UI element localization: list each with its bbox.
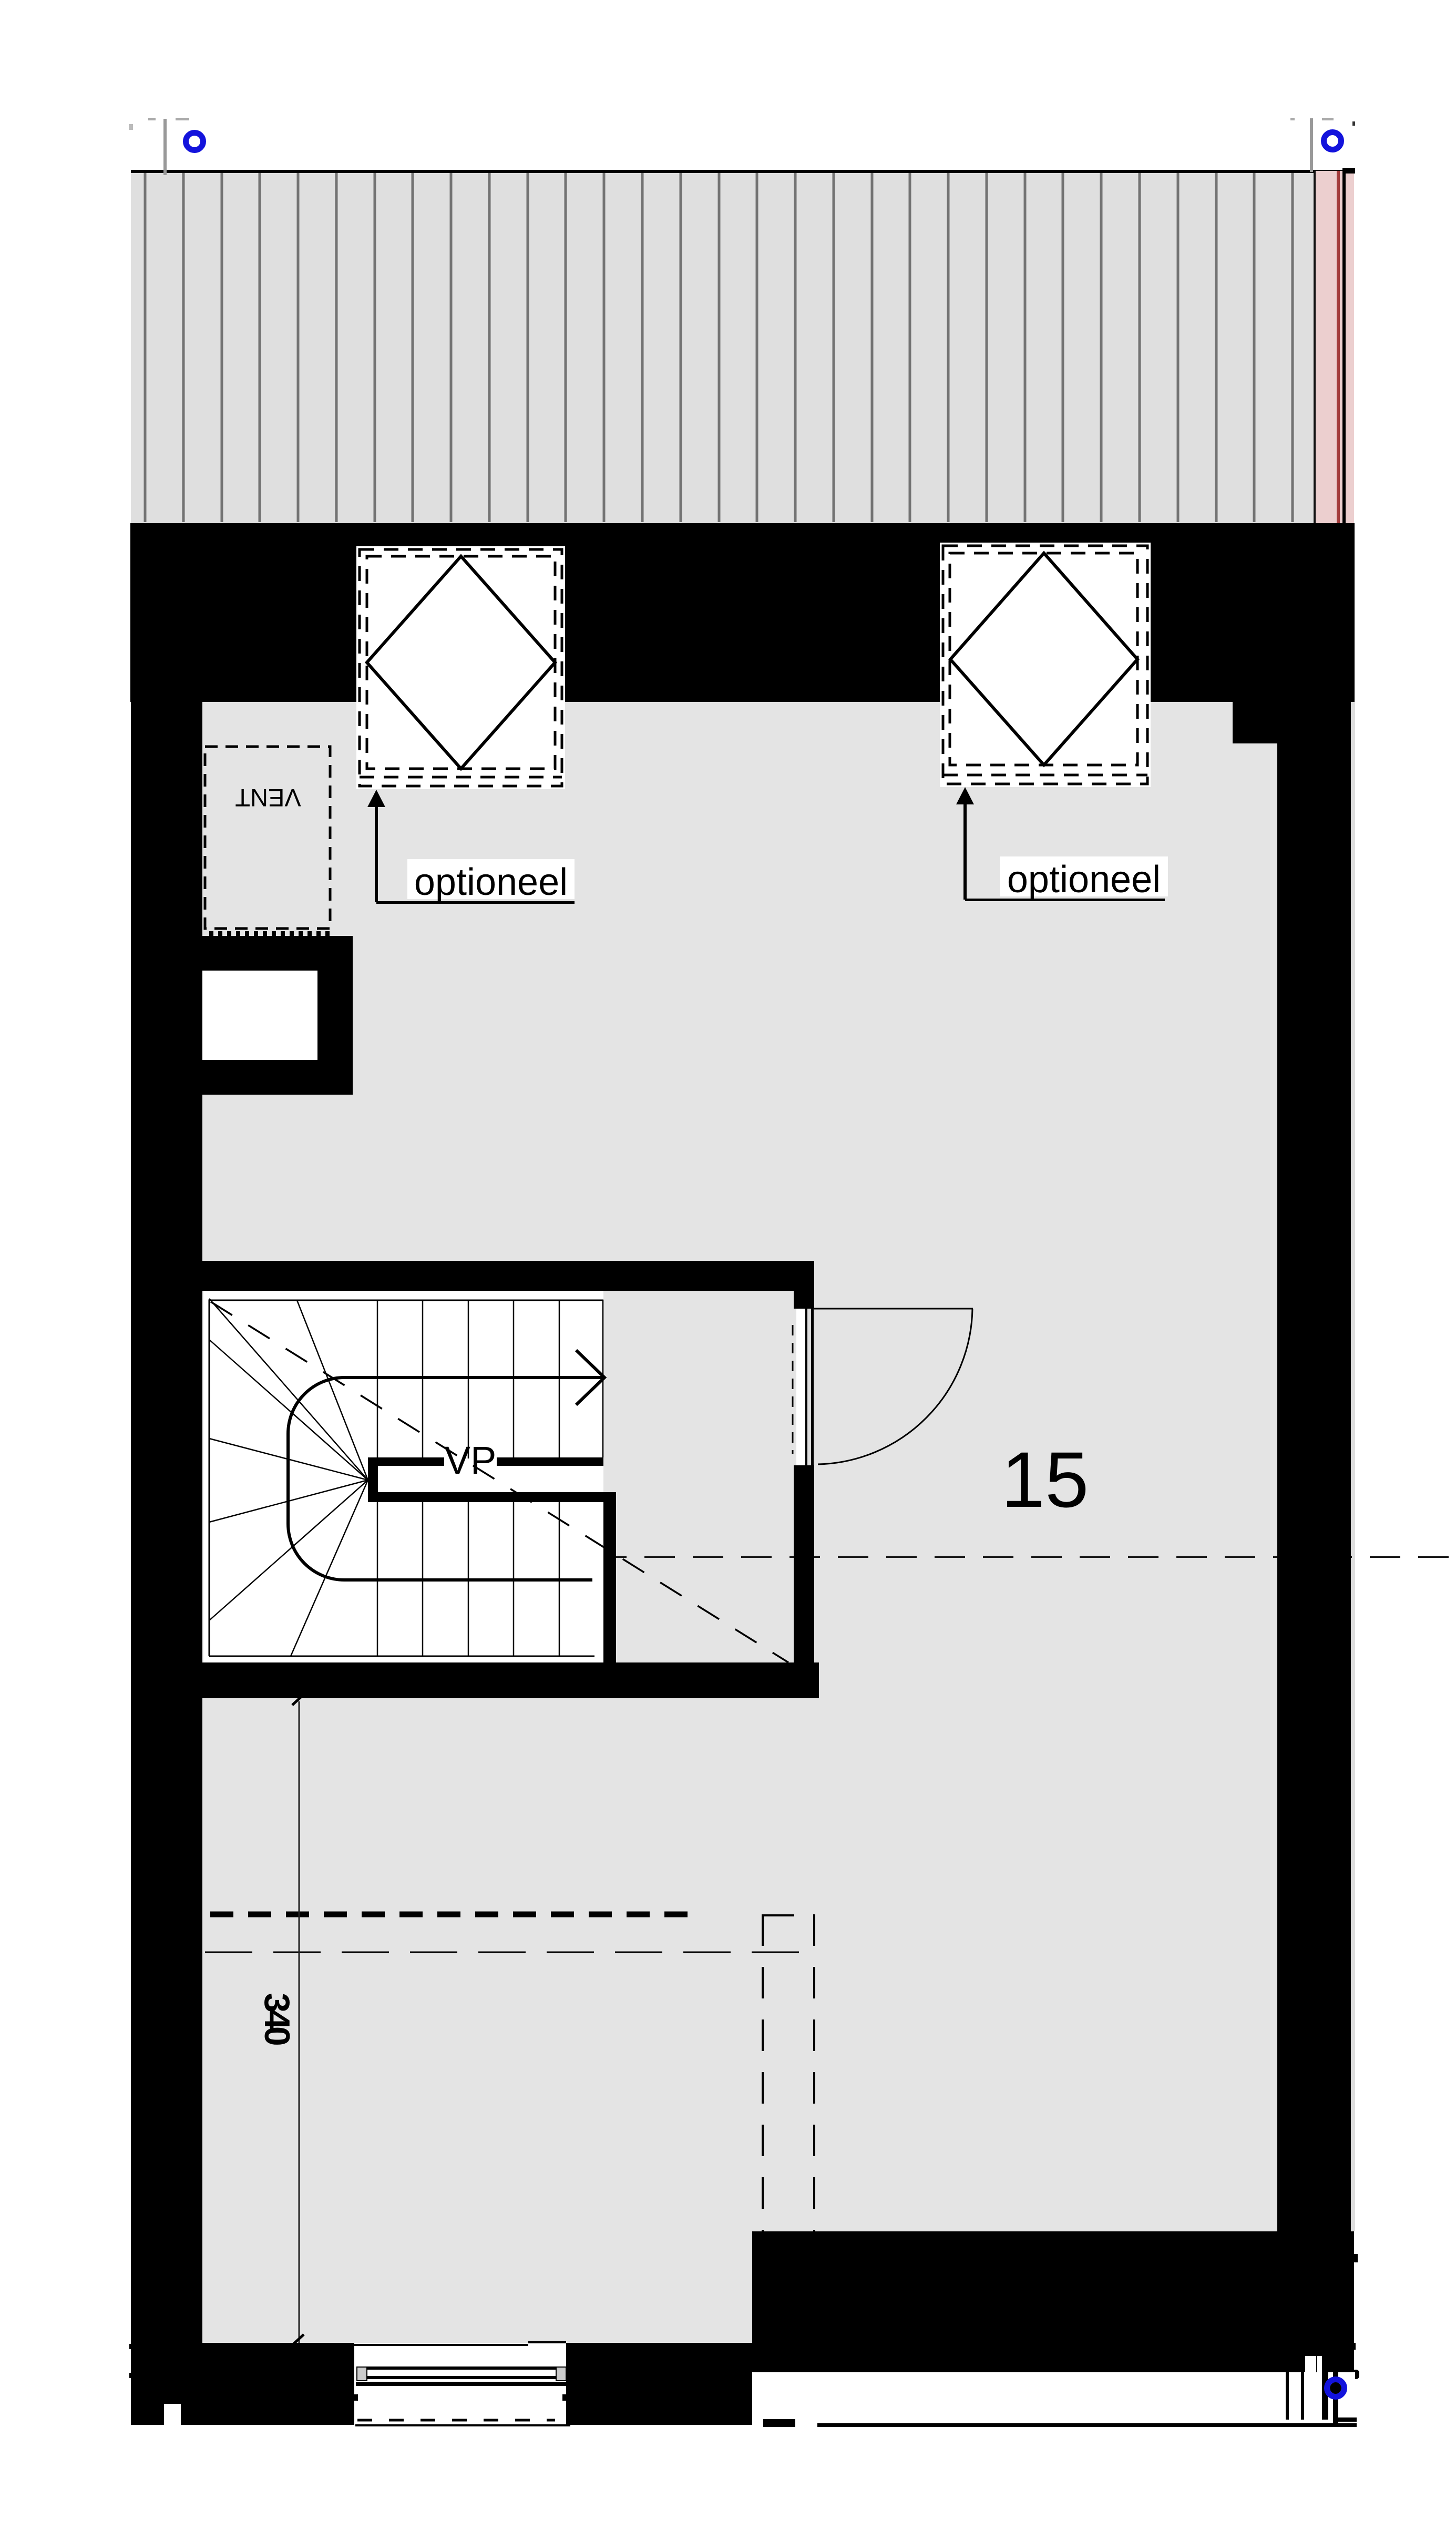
svg-text:optioneel: optioneel <box>1007 859 1161 901</box>
svg-text:15: 15 <box>1001 1435 1089 1524</box>
svg-text:340: 340 <box>257 1993 297 2045</box>
svg-text:optioneel: optioneel <box>414 861 568 903</box>
svg-text:VENT: VENT <box>235 784 301 812</box>
